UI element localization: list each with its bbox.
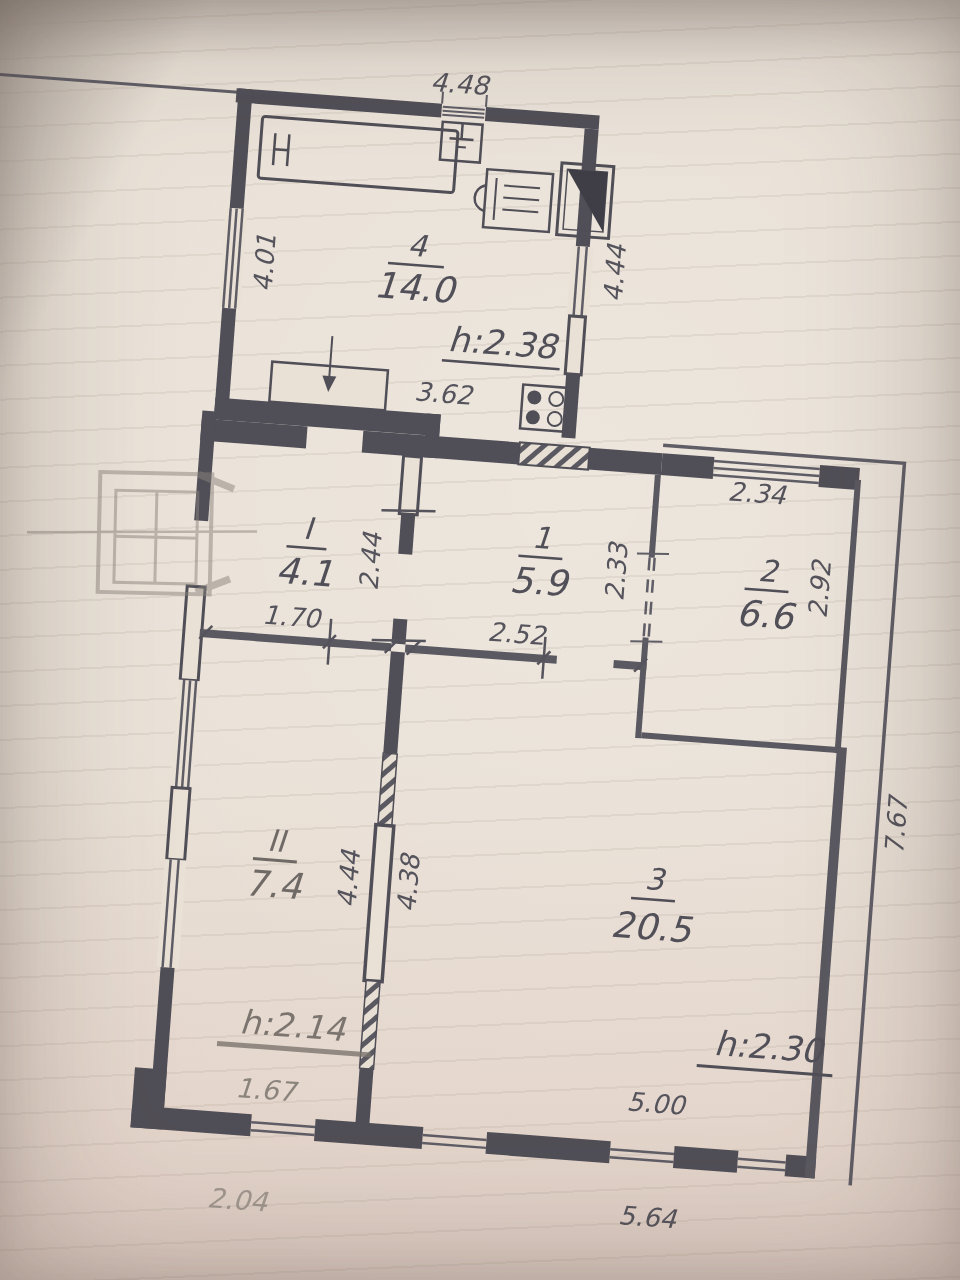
room2-area: 6.6 — [735, 592, 798, 637]
vent-shaft-icon — [269, 332, 390, 411]
dim-room2-side: 2.92 — [803, 558, 837, 619]
room4-number: 4 — [407, 228, 430, 264]
dim-room3-bottom: 5.00 — [626, 1086, 688, 1120]
dim-room3-wall: 4.38 — [391, 851, 425, 913]
window-left-2 — [157, 859, 187, 968]
bed-icon — [258, 116, 458, 193]
dim-hall-wall: 2.44 — [353, 530, 387, 591]
window-bottom-2 — [422, 1135, 486, 1148]
dim-room4-right: 4.44 — [598, 242, 632, 303]
dimension-ticks — [198, 494, 657, 688]
room4-area: 14.0 — [373, 264, 459, 311]
dim-room2-top: 2.34 — [727, 476, 788, 510]
gas-heater-icon — [472, 168, 553, 232]
hatched-wall-mid-1 — [378, 753, 397, 826]
roomI-area: 4.1 — [275, 550, 335, 595]
stove-4-burner-icon — [520, 385, 569, 432]
window-left-1 — [170, 679, 200, 788]
roomII-area: 7.4 — [243, 862, 304, 907]
dim-room4-inner: 3.62 — [413, 376, 474, 410]
window-bottom-3 — [610, 1149, 674, 1162]
window-bottom-4 — [737, 1159, 785, 1171]
window-room4-left — [218, 208, 247, 309]
window-room4-right — [567, 246, 594, 317]
room1-area: 5.9 — [508, 559, 571, 604]
dim-hall-width: 1.70 — [261, 600, 323, 634]
roomII-number: II — [266, 823, 289, 859]
room3-area: 20.5 — [609, 904, 694, 951]
room3-number: 3 — [644, 861, 668, 897]
dim-roomII-bottom: 1.67 — [235, 1072, 300, 1108]
dim-room1-width: 2.52 — [487, 617, 548, 651]
roomI-number: I — [302, 510, 317, 546]
dim-room4-left: 4.01 — [248, 233, 282, 293]
dim-bottom-left: 2.04 — [206, 1182, 269, 1217]
room1-number: 1 — [531, 520, 553, 556]
dim-room1-opening: 2.33 — [599, 540, 633, 602]
dim-roomII-wall: 4.44 — [332, 847, 366, 908]
floor-plan-photo: 4.48 4 14.0 h:2.38 3.62 4.01 4.44 I 4.1 … — [0, 0, 960, 1280]
dim-right-side: 7.67 — [879, 792, 914, 855]
floor-plan-drawing: 4.48 4 14.0 h:2.38 3.62 4.01 4.44 I 4.1 … — [0, 0, 960, 1280]
dim-top-width: 4.48 — [430, 67, 492, 101]
roomII-height: h:2.14 — [238, 1002, 347, 1049]
room2-number: 2 — [757, 553, 781, 589]
dashed-opening — [644, 557, 655, 637]
hatched-wall-top — [518, 442, 589, 469]
porch-sketch — [26, 470, 259, 595]
room4-height: h:2.38 — [447, 319, 562, 367]
dim-bottom-right: 5.64 — [617, 1200, 678, 1234]
sink-icon — [440, 122, 483, 163]
window-bottom-1 — [251, 1122, 315, 1135]
room3-height: h:2.30 — [713, 1023, 828, 1071]
